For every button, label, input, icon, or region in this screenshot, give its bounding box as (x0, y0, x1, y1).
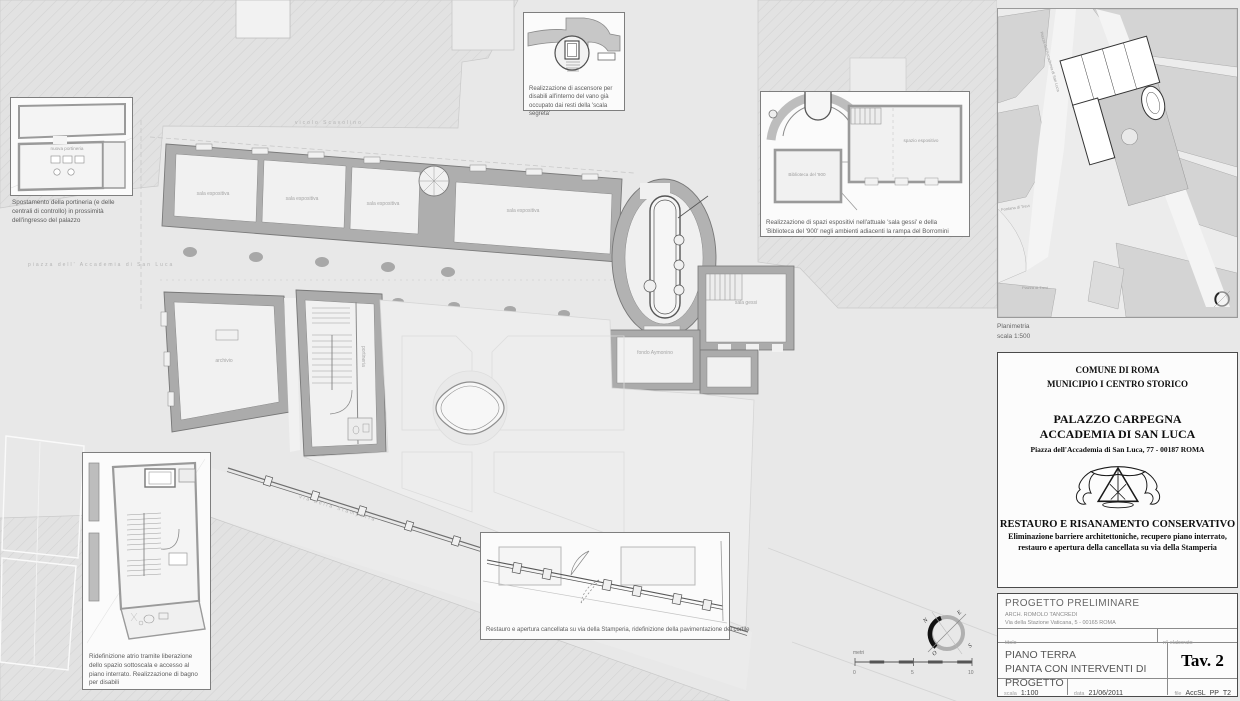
site-map: Piazza dell'Accademia di San Luca Fontan… (997, 8, 1238, 318)
scale-bar: metri 0 5 10 (853, 650, 974, 676)
map-label-piazza-trevi: Piazza di Trevi (1022, 285, 1048, 290)
room-label-sala-gessi: sala gessi (722, 300, 770, 306)
callout-atrio: Ridefinizione atrio tramite liberazione … (82, 452, 211, 690)
scalebar-unit: metri (853, 650, 864, 656)
building-address: Piazza dell'Accademia di San Luca, 77 - … (998, 445, 1237, 454)
sheet-number: Tav. 2 (1168, 643, 1237, 678)
sheet-title-line1: PIANO TERRA (1005, 648, 1160, 662)
callout-cancellata-drawing (481, 533, 729, 625)
site-map-caption: Planimetria scala 1:500 (997, 322, 1030, 342)
site-map-caption-scale: scala 1:500 (997, 332, 1030, 342)
room-label-portineria: portineria (360, 346, 366, 367)
compass-s: S (967, 643, 973, 650)
callout-portineria-caption: Spostamento della portineria (e delle ce… (12, 199, 134, 225)
callout-cancellata: Restauro e apertura cancellata su via de… (480, 532, 730, 640)
callout-atrio-caption: Ridefinizione atrio tramite liberazione … (89, 653, 205, 688)
drawing-sheet: { "plan": { "streets": { "top": "vicolo … (0, 0, 1240, 701)
site-map-caption-title: Planimetria (997, 322, 1030, 332)
floor-plan-area: N E S O metri 0 5 10 vicolo Scavolino pi… (0, 0, 997, 701)
building-name-line1: PALAZZO CARPEGNA (998, 412, 1237, 428)
accademia-emblem-logo (1062, 459, 1174, 513)
callout-ascensore: Realizzazione di ascensore per disabili … (523, 12, 625, 111)
compass-n: N (922, 617, 930, 625)
callout-ascensore-caption: Realizzazione di ascensore per disabili … (529, 85, 621, 119)
callout-spazi-room1-label: spazio espositivo (889, 138, 953, 144)
callout-spazi-espositivi: spazio espositivo Biblioteca del '900 Re… (760, 91, 970, 237)
street-label-vicolo-scavolino: vicolo Scavolino (295, 120, 363, 126)
scalebar-5: 5 (911, 670, 914, 676)
date-value: 21/06/2011 (1089, 690, 1124, 697)
room-label-archivio: archivio (202, 358, 246, 364)
scale-value: 1:100 (1021, 690, 1039, 697)
callout-spazi-room2-label: Biblioteca del '900 (785, 172, 829, 178)
street-label-piazza-accademia: piazza dell' Accademia di San Luca (28, 262, 174, 268)
scalebar-10: 10 (968, 670, 974, 676)
architect-address: Via della Stazione Vaticana, 5 - 00165 R… (1005, 620, 1230, 628)
room-label-sala-espositiva-1: sala espositiva (194, 191, 232, 197)
site-map-drawing (998, 9, 1237, 317)
project-title: RESTAURO E RISANAMENTO CONSERVATIVO (998, 519, 1237, 530)
label-data: data (1074, 691, 1085, 697)
scalebar-0: 0 (853, 670, 856, 676)
callout-spazi-drawing (761, 92, 969, 218)
project-subtitle-line2: restauro e apertura della cancellata su … (998, 543, 1237, 554)
compass-e: E (956, 609, 964, 617)
label-file: file (1174, 691, 1181, 697)
callout-cancellata-caption: Restauro e apertura cancellata su via de… (486, 626, 726, 634)
file-value: AccSL_PP_T2 (1185, 690, 1231, 697)
room-label-fondo-aymonino: fondo Aymonino (634, 350, 676, 356)
callout-ascensore-drawing (524, 13, 624, 83)
municipality-line2: MUNICIPIO I CENTRO STORICO (998, 377, 1237, 391)
callout-portineria: nuova portineria (10, 97, 133, 196)
north-compass: N E S O (922, 609, 974, 657)
compass-o: O (931, 650, 939, 658)
title-block-footer: PROGETTO PRELIMINARE ARCH. ROMOLO TANCRE… (997, 593, 1238, 697)
room-label-sala-espositiva-2: sala espositiva (283, 196, 321, 202)
room-label-sala-espositiva-4: sala espositiva (504, 208, 542, 214)
callout-spazi-caption: Realizzazione di spazi espositivi nell'a… (766, 219, 964, 236)
project-phase: PROGETTO PRELIMINARE (1005, 598, 1230, 609)
title-block-header: COMUNE DI ROMA MUNICIPIO I CENTRO STORIC… (997, 352, 1238, 588)
callout-atrio-drawing (83, 453, 210, 649)
architect-name: ARCH. ROMOLO TANCREDI (1005, 612, 1230, 620)
callout-portineria-room-label: nuova portineria (39, 146, 95, 152)
municipality-line1: COMUNE DI ROMA (998, 363, 1237, 377)
project-subtitle-line1: Eliminazione barriere architettoniche, r… (998, 532, 1237, 543)
building-name-line2: ACCADEMIA DI SAN LUCA (998, 427, 1237, 443)
room-label-sala-espositiva-3: sala espositiva (364, 201, 402, 207)
label-scala: scala (1004, 691, 1017, 697)
